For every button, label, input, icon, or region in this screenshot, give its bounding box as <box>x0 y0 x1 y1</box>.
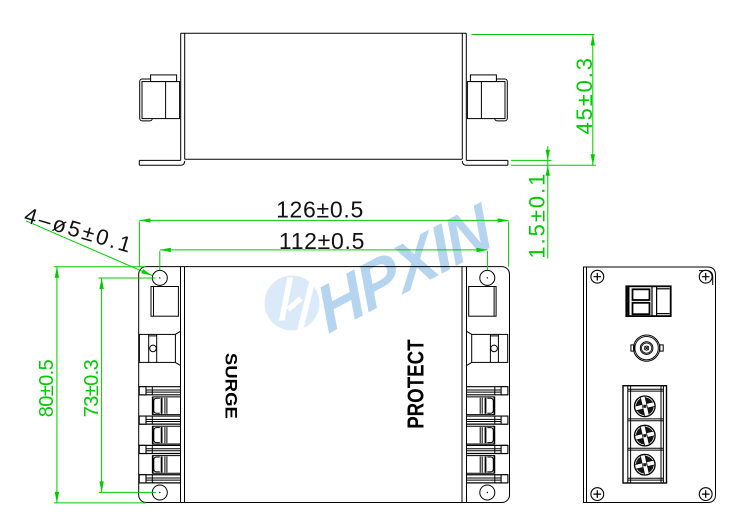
svg-text:80±0.5: 80±0.5 <box>36 359 58 417</box>
svg-text:PROTECT: PROTECT <box>402 340 428 429</box>
svg-text:73±0.3: 73±0.3 <box>81 359 103 417</box>
svg-text:112±0.5: 112±0.5 <box>279 228 365 254</box>
svg-text:45±0.3: 45±0.3 <box>572 58 597 135</box>
svg-text:126±0.5: 126±0.5 <box>276 197 364 223</box>
svg-text:SURGE: SURGE <box>221 353 240 419</box>
